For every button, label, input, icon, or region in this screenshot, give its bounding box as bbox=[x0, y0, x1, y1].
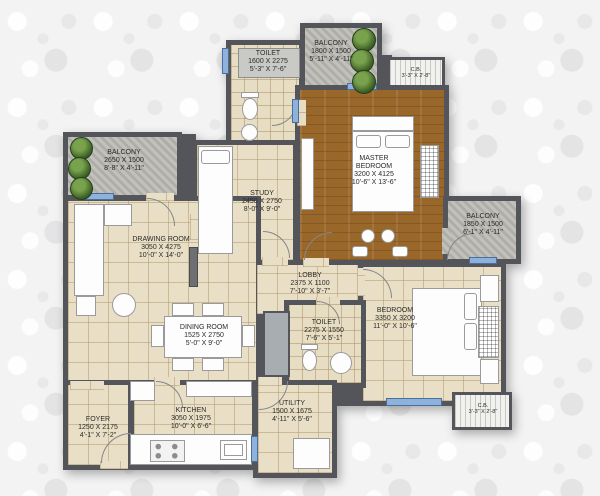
room-dim-mm: 1850 X 1500 bbox=[463, 221, 503, 229]
room-label-bedroom: BEDROOM 3350 X 3200 11'-0" X 10'-6" bbox=[373, 307, 417, 331]
window bbox=[222, 48, 229, 74]
room-label-cb-top: C.B. 3'-3" X 2'-8" bbox=[402, 67, 431, 79]
room-dim-mm: 3350 X 3200 bbox=[373, 315, 417, 323]
side-table bbox=[480, 359, 499, 384]
room-label-toilet-top: TOILET 1600 X 2275 5'-3" X 7'-6" bbox=[248, 50, 288, 74]
floor-plan-canvas: TOILET 1600 X 2275 5'-3" X 7'-6" BALCONY… bbox=[0, 0, 600, 496]
room-label-drawing: DRAWING ROOM 3050 X 4275 10'-0" X 14'-0" bbox=[132, 236, 189, 260]
wardrobe-icon bbox=[478, 306, 499, 358]
side-table bbox=[76, 296, 96, 316]
chair bbox=[242, 325, 255, 347]
room-name: TOILET bbox=[248, 50, 288, 58]
chair bbox=[202, 358, 224, 371]
basin-icon bbox=[241, 124, 258, 141]
room-dim-ft: 7'-10" X 3'-7" bbox=[290, 288, 330, 296]
room-name: TOILET bbox=[304, 319, 344, 327]
room-dim-mm: 3050 X 4275 bbox=[132, 244, 189, 252]
room-label-utility: UTILITY 1500 X 1675 4'-11" X 5'-6" bbox=[272, 400, 312, 424]
kitchen-counter bbox=[186, 381, 252, 397]
stove-icon bbox=[150, 440, 185, 462]
lounge-chair bbox=[112, 293, 136, 317]
window bbox=[469, 257, 497, 264]
window bbox=[292, 99, 299, 123]
room-dim-ft: 4'-1" X 7'-2" bbox=[78, 432, 118, 440]
room-dim-mm: 1525 X 2750 bbox=[180, 332, 228, 340]
room-label-foyer: FOYER 1250 X 2175 4'-1" X 7'-2" bbox=[78, 416, 118, 440]
room-label-balcony-right: BALCONY 1850 X 1500 6'-1" X 4'-11" bbox=[463, 213, 503, 237]
room-label-cb-bottom: C.B. 3'-3" X 2'-8" bbox=[469, 403, 498, 415]
door-opening bbox=[70, 381, 104, 390]
room-name: MASTER BEDROOM bbox=[348, 155, 400, 171]
side-table bbox=[480, 275, 499, 302]
plant-icon bbox=[352, 70, 376, 94]
dresser bbox=[352, 116, 414, 131]
room-name: BALCONY bbox=[463, 213, 503, 221]
room-label-balcony-left: BALCONY 2650 X 1500 8'-8" X 4'-11" bbox=[104, 149, 144, 173]
pillow bbox=[464, 293, 477, 320]
service-shaft bbox=[263, 311, 290, 377]
wash-unit bbox=[293, 438, 330, 469]
chair bbox=[172, 303, 194, 316]
pillow bbox=[356, 135, 381, 148]
room-label-dining: DINING ROOM 1525 X 2750 5'-0" X 9'-0" bbox=[180, 324, 228, 348]
room-dim-ft: 3'-3" X 2'-8" bbox=[402, 73, 431, 79]
closet bbox=[301, 138, 314, 210]
room-name: FOYER bbox=[78, 416, 118, 424]
sink-basin bbox=[224, 444, 243, 456]
room-dim-mm: 2650 X 1500 bbox=[104, 157, 144, 165]
room-name: BEDROOM bbox=[373, 307, 417, 315]
room-name: KITCHEN bbox=[171, 407, 211, 415]
room-dim-ft: 8'-0" X 9'-0" bbox=[242, 206, 282, 214]
pillow bbox=[464, 323, 477, 350]
room-label-master: MASTER BEDROOM 3200 X 4125 10'-6" X 13'-… bbox=[348, 155, 400, 187]
room-dim-ft: 5'-3" X 7'-6" bbox=[248, 66, 288, 74]
room-dim-ft: 10'-6" X 13'-6" bbox=[348, 179, 400, 187]
door-opening bbox=[262, 257, 288, 266]
room-label-toilet-mid: TOILET 2275 X 1550 7'-6" X 5'-1" bbox=[304, 319, 344, 343]
chair bbox=[202, 303, 224, 316]
sofa bbox=[104, 204, 132, 226]
room-label-balcony-top: BALCONY 1800 X 1500 5'-11" X 4'-11" bbox=[309, 40, 352, 64]
sink-icon bbox=[220, 440, 247, 460]
wardrobe-icon bbox=[420, 145, 439, 198]
sofa bbox=[74, 204, 104, 296]
seat bbox=[392, 246, 408, 257]
seat bbox=[352, 246, 368, 257]
room-dim-mm: 2450 X 2750 bbox=[242, 198, 282, 206]
room-label-study: STUDY 2450 X 2750 8'-0" X 9'-0" bbox=[242, 190, 282, 214]
kitchen-counter bbox=[130, 381, 155, 401]
wc-icon bbox=[242, 98, 258, 120]
room-name: DINING ROOM bbox=[180, 324, 228, 332]
room-name: DRAWING ROOM bbox=[132, 236, 189, 244]
room-name: BALCONY bbox=[309, 40, 352, 48]
room-dim-mm: 2275 X 1550 bbox=[304, 327, 344, 335]
chair bbox=[151, 325, 164, 347]
room-label-kitchen: KITCHEN 3050 X 1975 10'-0" X 6'-6" bbox=[171, 407, 211, 431]
room-name: LOBBY bbox=[290, 272, 330, 280]
room-dim-mm: 1600 X 2275 bbox=[248, 58, 288, 66]
tv-unit bbox=[189, 247, 198, 287]
room-dim-ft: 10'-0" X 14'-0" bbox=[132, 252, 189, 260]
room-dim-mm: 1500 X 1675 bbox=[272, 408, 312, 416]
plant-icon bbox=[70, 177, 93, 200]
room-dim-mm: 2375 X 1100 bbox=[290, 280, 330, 288]
room-name: UTILITY bbox=[272, 400, 312, 408]
room-dim-ft: 8'-8" X 4'-11" bbox=[104, 165, 144, 173]
window bbox=[386, 398, 442, 406]
room-dim-ft: 4'-11" X 5'-6" bbox=[272, 416, 312, 424]
floor-plan: TOILET 1600 X 2275 5'-3" X 7'-6" BALCONY… bbox=[0, 0, 600, 496]
pouf bbox=[381, 229, 395, 243]
pillow bbox=[385, 135, 410, 148]
window bbox=[251, 436, 258, 462]
wc-icon bbox=[302, 350, 317, 371]
room-dim-mm: 3050 X 1975 bbox=[171, 415, 211, 423]
room-dim-ft: 6'-1" X 4'-11" bbox=[463, 229, 503, 237]
room-dim-ft: 3'-3" X 2'-8" bbox=[469, 409, 498, 415]
chair bbox=[172, 358, 194, 371]
room-dim-ft: 11'-0" X 10'-6" bbox=[373, 323, 417, 331]
room-dim-mm: 1250 X 2175 bbox=[78, 424, 118, 432]
basin-icon bbox=[330, 352, 352, 374]
room-dim-mm: 1800 X 1500 bbox=[309, 48, 352, 56]
room-dim-ft: 7'-6" X 5'-1" bbox=[304, 335, 344, 343]
room-dim-mm: 3200 X 4125 bbox=[348, 171, 400, 179]
room-dim-ft: 5'-11" X 4'-11" bbox=[309, 56, 352, 64]
room-name: STUDY bbox=[242, 190, 282, 198]
pillow bbox=[201, 150, 230, 164]
room-dim-ft: 10'-0" X 6'-6" bbox=[171, 423, 211, 431]
pouf bbox=[361, 229, 375, 243]
room-name: BALCONY bbox=[104, 149, 144, 157]
room-label-lobby: LOBBY 2375 X 1100 7'-10" X 3'-7" bbox=[290, 272, 330, 296]
room-dim-ft: 5'-0" X 9'-0" bbox=[180, 340, 228, 348]
